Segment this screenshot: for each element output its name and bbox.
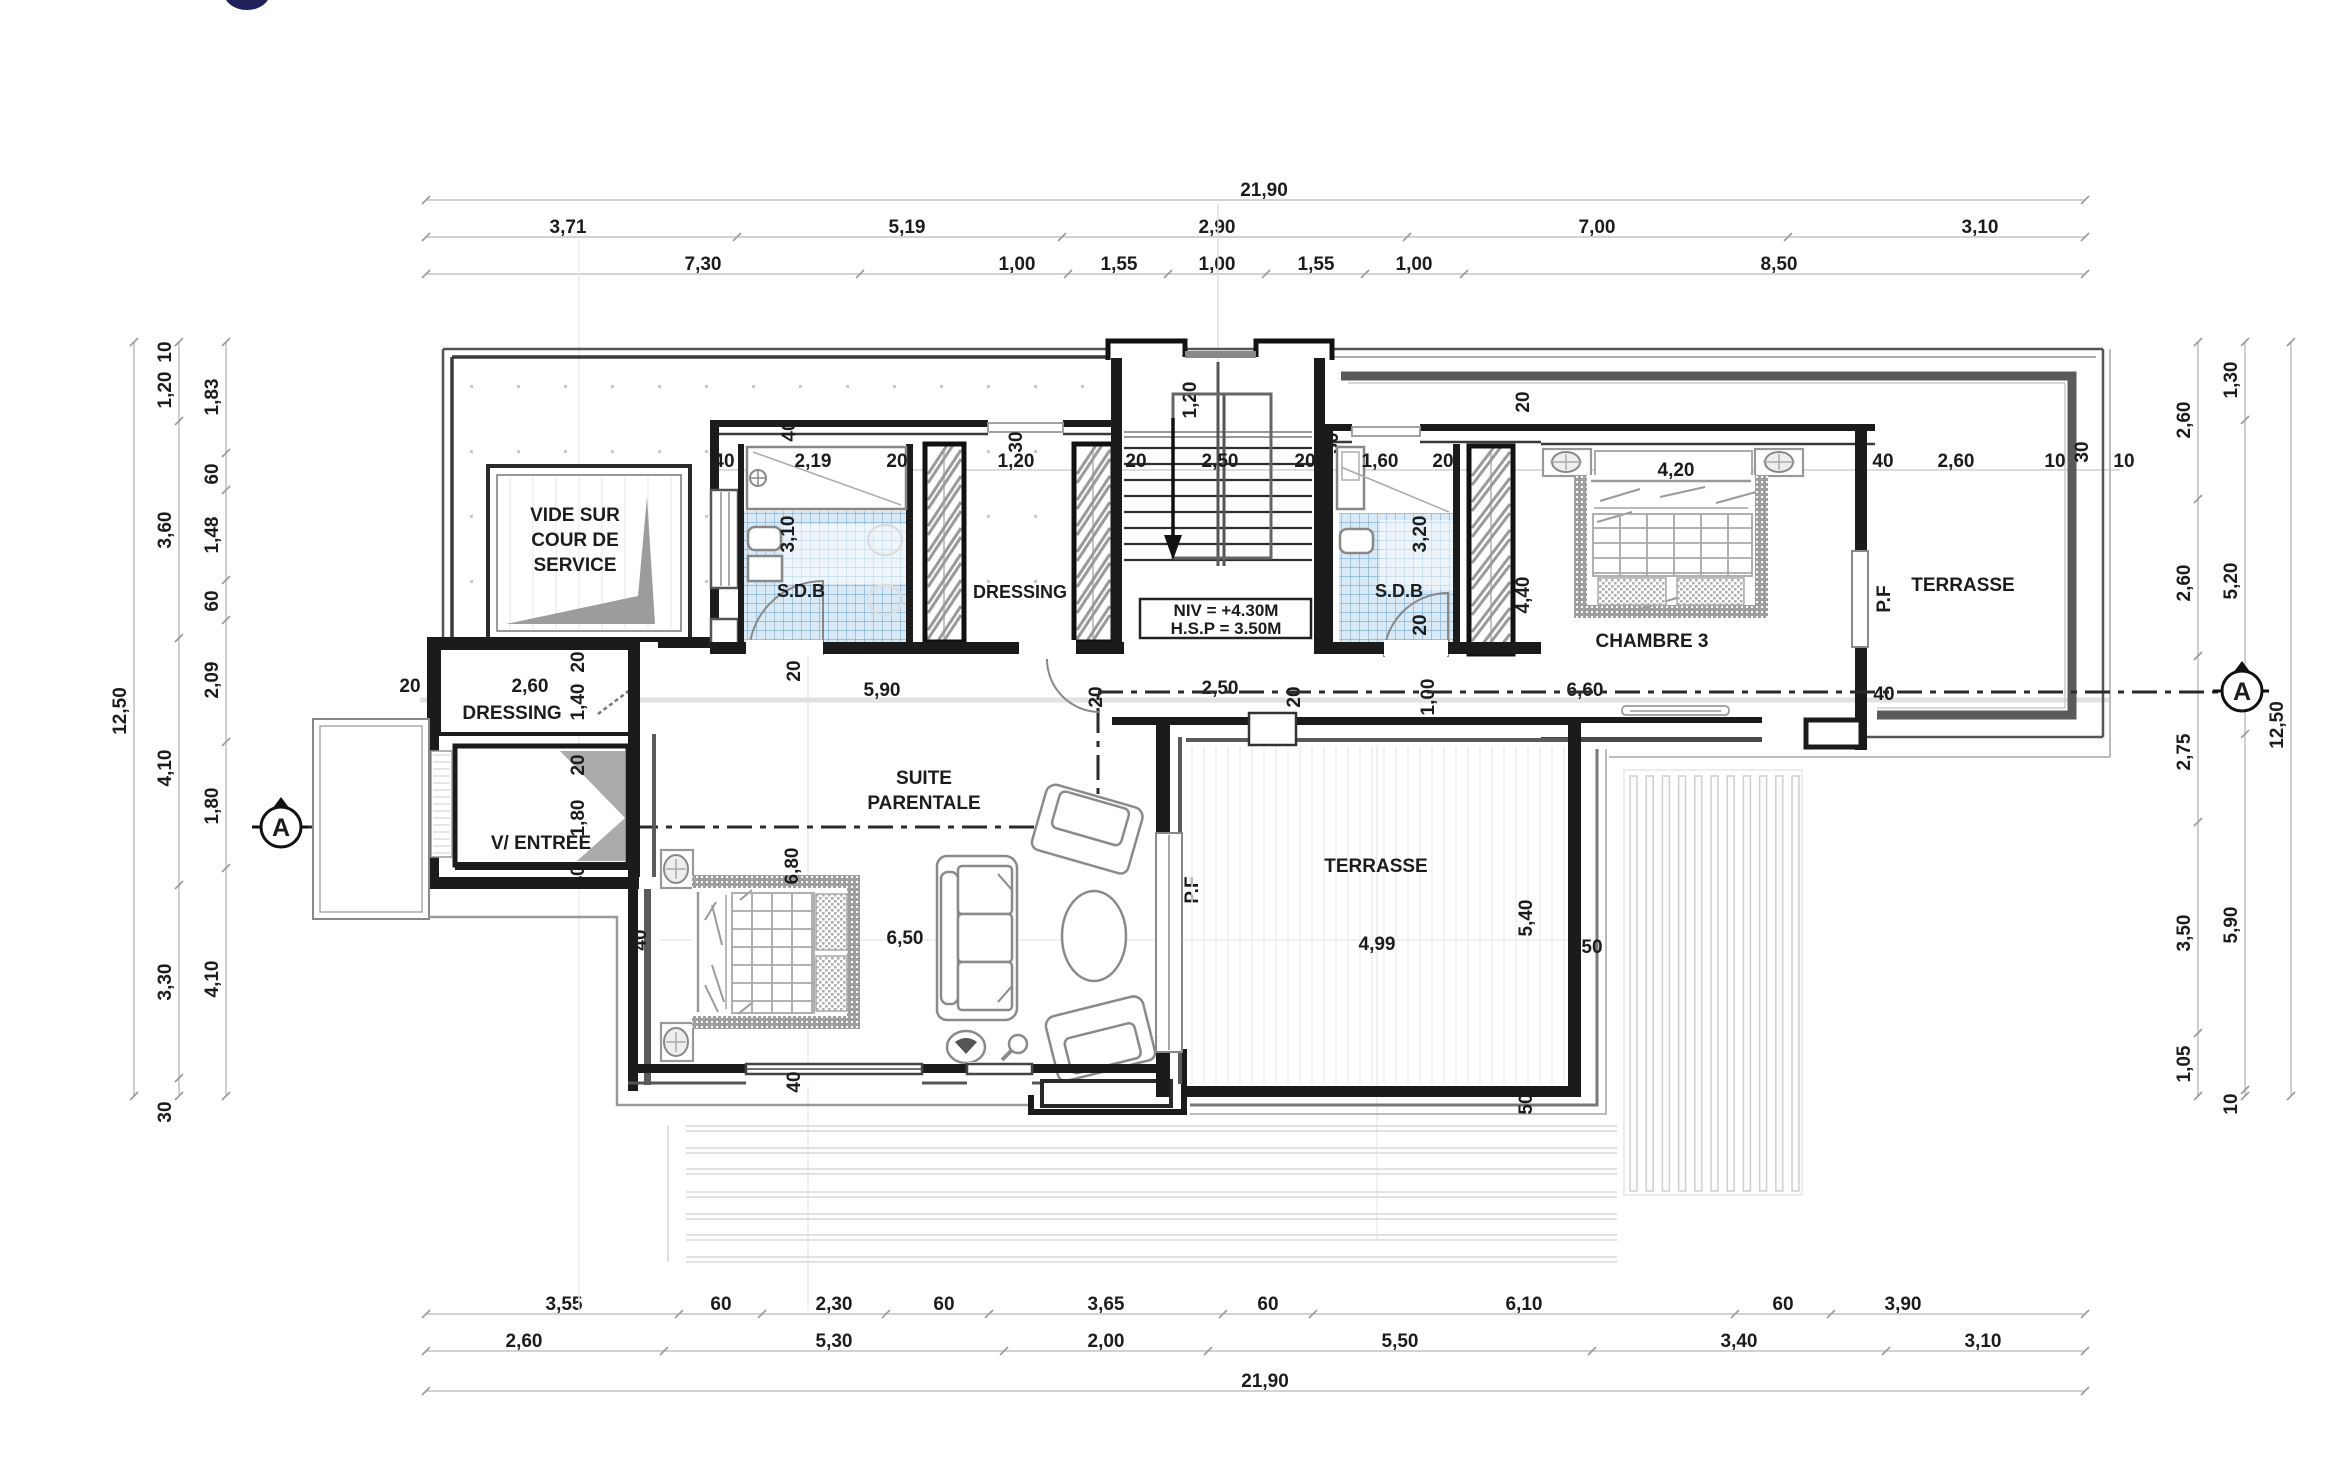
- svg-text:2,19: 2,19: [795, 451, 832, 472]
- svg-text:1,00: 1,00: [1396, 254, 1433, 275]
- svg-text:2,60: 2,60: [506, 1331, 543, 1352]
- svg-text:2,09: 2,09: [202, 662, 223, 699]
- svg-text:2,90: 2,90: [1199, 217, 1236, 238]
- svg-text:P.F: P.F: [1874, 585, 1895, 612]
- svg-text:SERVICE: SERVICE: [533, 555, 616, 576]
- svg-text:12,50: 12,50: [110, 687, 131, 735]
- svg-text:5,19: 5,19: [889, 217, 926, 238]
- svg-text:VIDE SUR: VIDE SUR: [530, 505, 620, 526]
- svg-text:10: 10: [2044, 451, 2065, 472]
- svg-text:1,55: 1,55: [1298, 254, 1335, 275]
- svg-text:60: 60: [202, 463, 223, 484]
- svg-text:SUITE: SUITE: [896, 768, 952, 789]
- svg-text:20: 20: [1513, 391, 1534, 412]
- svg-text:6,80: 6,80: [782, 848, 803, 885]
- svg-text:2,75: 2,75: [2174, 733, 2195, 770]
- svg-text:21,90: 21,90: [1241, 1371, 1289, 1392]
- svg-text:3,50: 3,50: [2174, 915, 2195, 952]
- svg-text:20: 20: [1284, 686, 1305, 707]
- svg-text:20: 20: [1432, 451, 1453, 472]
- svg-text:4,20: 4,20: [1658, 460, 1695, 481]
- svg-text:1,00: 1,00: [999, 254, 1036, 275]
- svg-text:1,60: 1,60: [1362, 451, 1399, 472]
- svg-text:2,50: 2,50: [1202, 678, 1239, 699]
- svg-text:CHAMBRE 3: CHAMBRE 3: [1596, 631, 1709, 652]
- svg-text:20: 20: [1125, 451, 1146, 472]
- svg-text:20: 20: [568, 754, 589, 775]
- svg-text:4,99: 4,99: [1359, 934, 1396, 955]
- svg-text:H.S.P = 3.50M: H.S.P = 3.50M: [1171, 619, 1282, 638]
- svg-text:1,40: 1,40: [568, 684, 589, 721]
- svg-text:7,00: 7,00: [1579, 217, 1616, 238]
- svg-text:PARENTALE: PARENTALE: [867, 793, 980, 814]
- svg-text:2,60: 2,60: [1938, 451, 1975, 472]
- svg-text:1,83: 1,83: [202, 379, 223, 416]
- svg-text:TERRASSE: TERRASSE: [1324, 856, 1427, 877]
- svg-text:4,10: 4,10: [202, 961, 223, 998]
- svg-text:DRESSING: DRESSING: [973, 582, 1067, 602]
- svg-text:1,48: 1,48: [202, 517, 223, 554]
- svg-text:1,05: 1,05: [2174, 1045, 2195, 1082]
- svg-text:30: 30: [155, 1101, 176, 1122]
- svg-text:3,30: 3,30: [155, 964, 176, 1001]
- svg-text:50: 50: [1581, 937, 1602, 958]
- svg-text:2,60: 2,60: [512, 676, 549, 697]
- svg-text:3,65: 3,65: [1088, 1294, 1125, 1315]
- svg-text:3,20: 3,20: [1410, 516, 1431, 553]
- svg-text:A: A: [272, 814, 290, 842]
- svg-text:60: 60: [202, 590, 223, 611]
- svg-text:40: 40: [779, 420, 800, 441]
- svg-text:5,30: 5,30: [816, 1331, 853, 1352]
- svg-text:40: 40: [1872, 451, 1893, 472]
- svg-text:6,10: 6,10: [1506, 1294, 1543, 1315]
- svg-text:1,30: 1,30: [2221, 362, 2242, 399]
- svg-text:40: 40: [1873, 684, 1894, 705]
- svg-text:60: 60: [1257, 1294, 1278, 1315]
- svg-text:5,90: 5,90: [2221, 907, 2242, 944]
- svg-text:8,50: 8,50: [1761, 254, 1798, 275]
- svg-text:4,40: 4,40: [1513, 577, 1534, 614]
- svg-text:3,10: 3,10: [1962, 217, 1999, 238]
- svg-text:30: 30: [1006, 431, 1027, 452]
- svg-text:TERRASSE: TERRASSE: [1911, 575, 2014, 596]
- svg-text:60: 60: [1772, 1294, 1793, 1315]
- svg-text:50: 50: [1516, 1093, 1537, 1114]
- svg-text:DRESSING: DRESSING: [462, 703, 561, 724]
- svg-text:1,00: 1,00: [1199, 254, 1236, 275]
- svg-text:30: 30: [2072, 441, 2093, 462]
- svg-text:20: 20: [1294, 451, 1315, 472]
- svg-text:60: 60: [710, 1294, 731, 1315]
- svg-text:1,20: 1,20: [1180, 382, 1201, 419]
- svg-text:1,20: 1,20: [998, 451, 1035, 472]
- svg-text:NIV = +4.30M: NIV = +4.30M: [1174, 601, 1279, 620]
- svg-text:4,10: 4,10: [155, 750, 176, 787]
- svg-text:5,20: 5,20: [2221, 563, 2242, 600]
- svg-text:5,90: 5,90: [864, 680, 901, 701]
- svg-text:3,71: 3,71: [550, 217, 587, 238]
- svg-text:COUR DE: COUR DE: [531, 530, 619, 551]
- svg-text:2,00: 2,00: [1088, 1331, 1125, 1352]
- svg-text:20: 20: [1410, 614, 1431, 635]
- svg-text:3,55: 3,55: [546, 1294, 583, 1315]
- svg-text:10: 10: [2221, 1093, 2242, 1114]
- svg-text:3,40: 3,40: [1721, 1331, 1758, 1352]
- svg-text:10: 10: [2113, 451, 2134, 472]
- svg-text:20: 20: [784, 660, 805, 681]
- svg-text:S.D.B: S.D.B: [1375, 581, 1423, 601]
- svg-text:21,90: 21,90: [1240, 180, 1288, 201]
- svg-text:1,80: 1,80: [202, 788, 223, 825]
- svg-text:20: 20: [886, 451, 907, 472]
- svg-text:5,50: 5,50: [1382, 1331, 1419, 1352]
- svg-text:A: A: [2233, 678, 2251, 706]
- svg-text:20: 20: [399, 676, 420, 697]
- svg-text:S.D.B: S.D.B: [777, 581, 825, 601]
- svg-text:40: 40: [630, 929, 651, 950]
- svg-text:1,20: 1,20: [155, 372, 176, 409]
- svg-text:2,60: 2,60: [2174, 402, 2195, 439]
- svg-text:2,50: 2,50: [1202, 451, 1239, 472]
- svg-text:3,60: 3,60: [155, 512, 176, 549]
- svg-text:3,10: 3,10: [778, 516, 799, 553]
- svg-text:2,60: 2,60: [2174, 565, 2195, 602]
- svg-text:40: 40: [713, 451, 734, 472]
- svg-text:5,40: 5,40: [1516, 900, 1537, 937]
- svg-text:40: 40: [784, 1071, 805, 1092]
- svg-text:7,30: 7,30: [685, 254, 722, 275]
- svg-text:1,55: 1,55: [1101, 254, 1138, 275]
- svg-text:1,80: 1,80: [568, 800, 589, 837]
- svg-text:1,00: 1,00: [1418, 679, 1439, 716]
- svg-text:60: 60: [933, 1294, 954, 1315]
- svg-text:3,90: 3,90: [1885, 1294, 1922, 1315]
- svg-text:20: 20: [568, 651, 589, 672]
- svg-text:10: 10: [155, 341, 176, 362]
- svg-text:2,30: 2,30: [816, 1294, 853, 1315]
- svg-text:6,50: 6,50: [887, 928, 924, 949]
- svg-text:12,50: 12,50: [2267, 701, 2288, 749]
- svg-text:3,10: 3,10: [1965, 1331, 2002, 1352]
